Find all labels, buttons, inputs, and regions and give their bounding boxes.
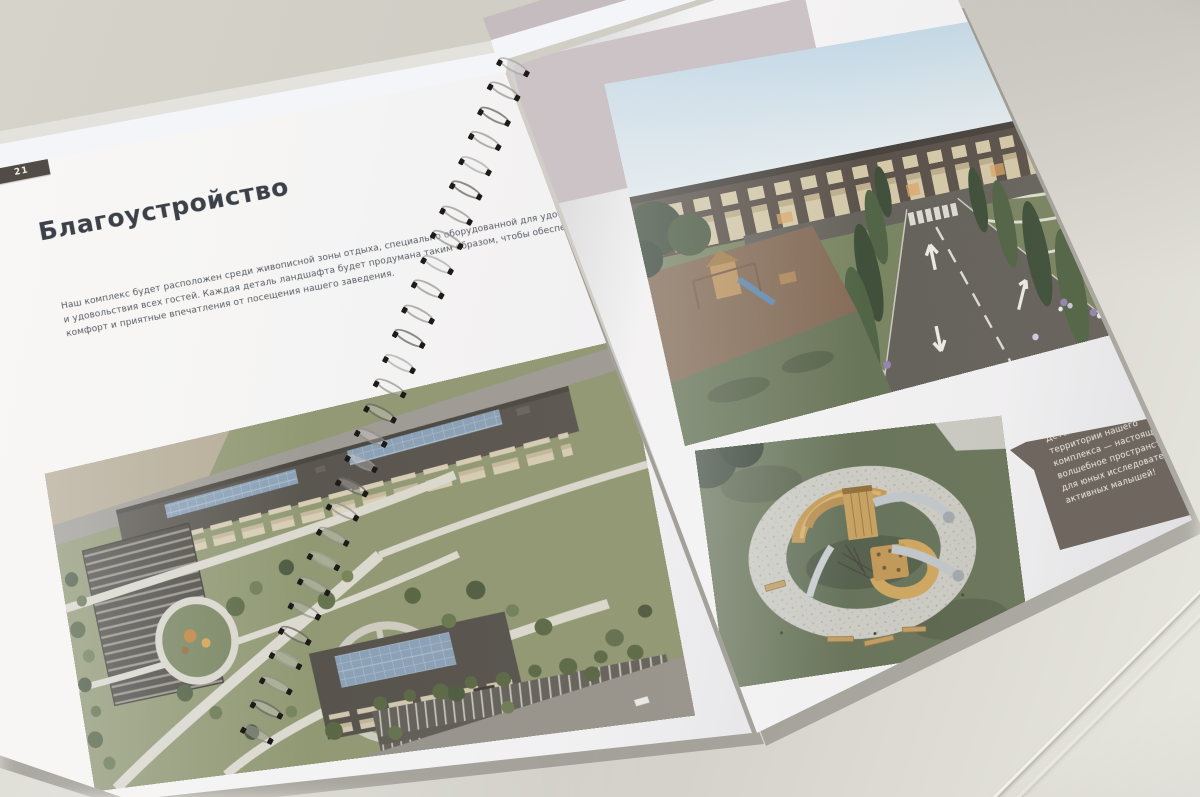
spiral-coil [250, 696, 285, 722]
spiral-coil [496, 54, 531, 80]
desk-seam [1001, 600, 1200, 797]
spiral-coil [468, 128, 503, 154]
spiral-coil [373, 375, 408, 401]
lawn-paths [957, 172, 1113, 271]
page-number: 21 [13, 165, 29, 178]
balance-beams [764, 562, 927, 660]
playground-pad [644, 220, 863, 383]
spiral-coil [449, 177, 484, 203]
parking-canopy [82, 523, 223, 705]
brochure-photo: 21 Благоустройство Наш комплекс будет ра… [0, 0, 1200, 797]
second-building [309, 612, 526, 740]
spiral-coil [345, 449, 380, 475]
spiral-coil [278, 622, 313, 648]
spiral-coil [439, 202, 474, 228]
spiral-coil [458, 153, 493, 179]
spiral-coil [411, 276, 446, 302]
playground-structure [792, 475, 965, 607]
spiral-coil [477, 103, 512, 129]
spiral-coil [288, 597, 323, 623]
spiral-coil [307, 548, 342, 574]
spiral-coil [354, 424, 389, 450]
spiral-coil [297, 573, 332, 599]
spiral-coil [487, 78, 522, 104]
spiral-coil [335, 474, 370, 500]
spiral-coil [269, 647, 304, 673]
playground-render-image [695, 416, 1031, 690]
spiral-coil [430, 227, 465, 253]
spiral-coil [364, 400, 399, 426]
spiral-coil [382, 350, 417, 376]
spiral-coil [326, 498, 361, 524]
road-arrows [914, 226, 1035, 353]
spiral-coil [316, 523, 351, 549]
spiral-coil [392, 326, 427, 352]
spiral-coil [420, 251, 455, 277]
spiral-coil [401, 301, 436, 327]
spiral-coil [259, 671, 294, 697]
